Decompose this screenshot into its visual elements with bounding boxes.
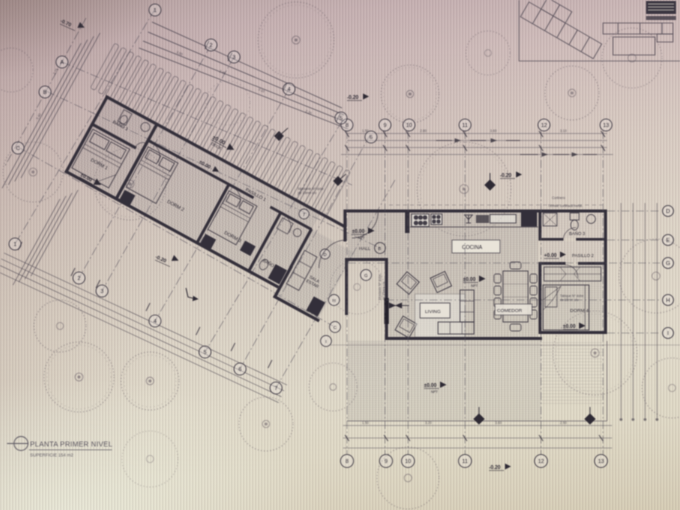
svg-text:PASILLO 2: PASILLO 2 <box>572 253 594 258</box>
svg-text:11: 11 <box>462 459 468 465</box>
svg-text:3.20: 3.20 <box>425 421 432 425</box>
svg-text:HALL: HALL <box>359 246 371 251</box>
svg-text:2.90: 2.90 <box>560 421 567 425</box>
svg-text:1: 1 <box>13 242 16 248</box>
svg-text:12: 12 <box>538 459 544 465</box>
svg-text:10: 10 <box>405 459 411 465</box>
svg-text:DORM 4: DORM 4 <box>570 308 589 314</box>
svg-text:5: 5 <box>339 116 342 122</box>
svg-text:G: G <box>666 261 670 267</box>
svg-text:-0.20: -0.20 <box>347 95 359 101</box>
svg-text:NPT: NPT <box>358 236 365 240</box>
svg-text:-0.20: -0.20 <box>500 173 512 179</box>
svg-text:3: 3 <box>100 289 103 295</box>
svg-text:SUPERFICIE 154 m2: SUPERFICIE 154 m2 <box>30 453 74 458</box>
svg-text:4: 4 <box>287 87 290 93</box>
svg-text:G: G <box>364 273 368 278</box>
svg-text:3.60: 3.60 <box>490 129 497 133</box>
svg-text:COMEDOR: COMEDOR <box>497 308 523 314</box>
svg-text:cortinado metál.: cortinado metál. <box>560 204 583 208</box>
svg-text:A: A <box>60 60 64 66</box>
svg-text:BAÑO 3: BAÑO 3 <box>569 231 586 236</box>
svg-text:±0.00: ±0.00 <box>424 383 437 389</box>
svg-text:9: 9 <box>384 459 387 465</box>
svg-text:1: 1 <box>153 8 156 14</box>
svg-text:13: 13 <box>598 459 604 465</box>
svg-text:de 15mm c/u: de 15mm c/u <box>298 191 317 195</box>
svg-text:+0.00: +0.00 <box>544 253 557 259</box>
svg-text:B: B <box>378 246 381 251</box>
svg-text:6: 6 <box>238 367 241 373</box>
svg-text:4: 4 <box>153 319 156 325</box>
svg-text:5: 5 <box>203 350 206 356</box>
svg-text:Térmite: Térmite <box>548 204 559 208</box>
svg-text:NPT: NPT <box>471 284 478 288</box>
svg-text:D: D <box>666 209 670 215</box>
svg-text:3: 3 <box>232 55 235 61</box>
svg-text:7: 7 <box>274 386 277 392</box>
svg-text:±0.00: ±0.00 <box>563 324 576 330</box>
svg-text:I: I <box>325 339 326 344</box>
svg-text:E: E <box>666 238 670 244</box>
svg-text:NPT: NPT <box>570 331 577 335</box>
svg-text:B: B <box>43 90 47 96</box>
svg-text:2: 2 <box>77 276 80 282</box>
svg-text:LIVING: LIVING <box>425 309 441 315</box>
svg-text:PLANTA PRIMER NIVEL: PLANTA PRIMER NIVEL <box>30 441 113 449</box>
svg-text:C: C <box>16 146 20 152</box>
svg-text:2.80: 2.80 <box>420 129 427 133</box>
svg-text:8: 8 <box>345 459 348 465</box>
svg-text:12: 12 <box>541 123 547 129</box>
svg-text:2: 2 <box>209 43 212 49</box>
svg-text:H: H <box>332 298 335 303</box>
svg-text:Cortinero: Cortinero <box>552 196 565 200</box>
svg-text:6: 6 <box>369 135 372 141</box>
svg-text:-0.70: -0.70 <box>59 18 72 28</box>
svg-text:3.10: 3.10 <box>560 129 567 133</box>
svg-text:13: 13 <box>603 123 609 129</box>
svg-text:10: 10 <box>406 123 412 129</box>
svg-text:de 15mm c/u: de 15mm c/u <box>382 281 386 300</box>
svg-text:1.50: 1.50 <box>362 421 369 425</box>
svg-text:8: 8 <box>345 123 348 129</box>
svg-text:11: 11 <box>462 123 468 129</box>
svg-text:3.60: 3.60 <box>495 421 502 425</box>
svg-text:-0.20: -0.20 <box>489 465 501 471</box>
svg-text:9: 9 <box>383 123 386 129</box>
svg-text:NPT: NPT <box>431 390 438 394</box>
svg-text:H: H <box>666 298 670 304</box>
svg-text:±0.00: ±0.00 <box>352 229 365 235</box>
